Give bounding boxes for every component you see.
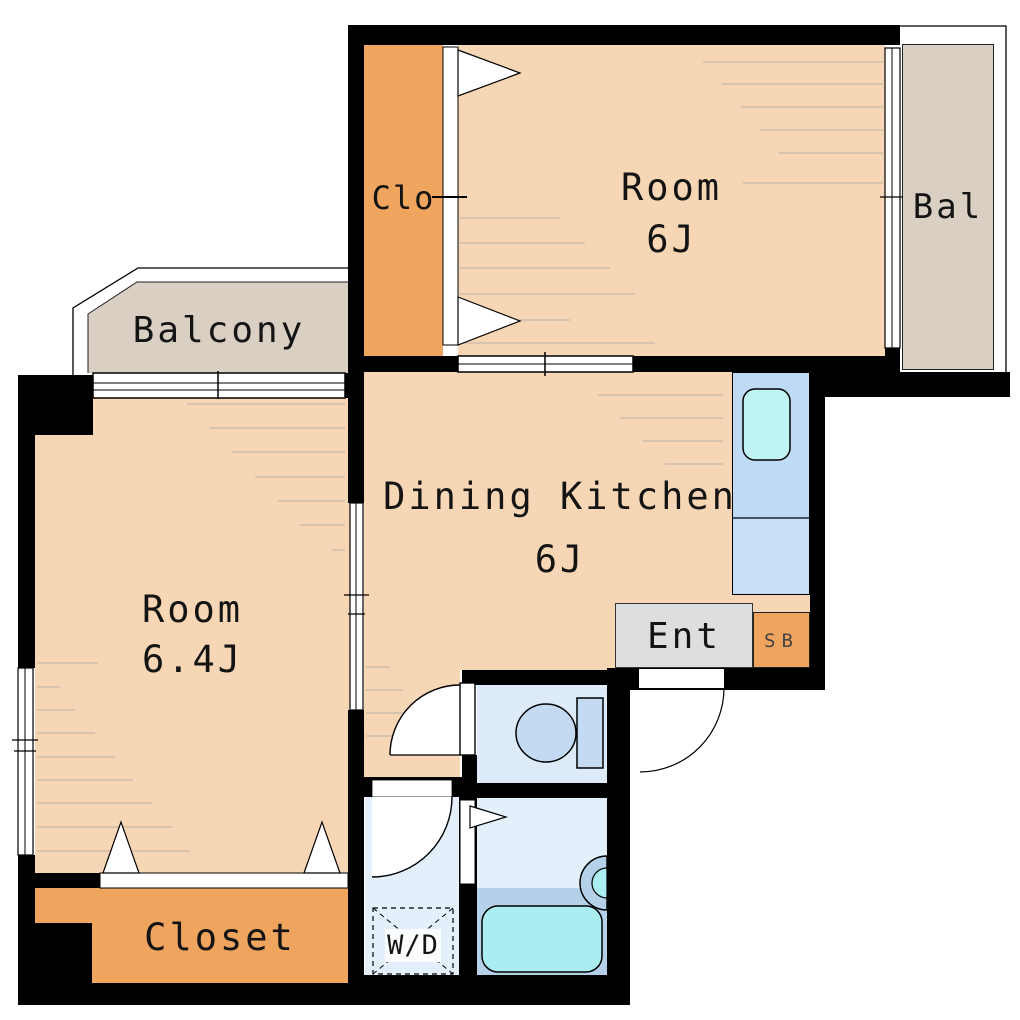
bedroom-top-size: 6J <box>458 220 885 260</box>
entrance-door-arc <box>640 688 724 772</box>
closet-bottom-door-triangle <box>304 822 340 873</box>
closet-bottom-label: Closet <box>92 918 348 958</box>
washer-dryer-label: W/D <box>369 931 457 961</box>
shoe-box-label: SB <box>753 629 810 653</box>
balcony-left-label: Balcony <box>88 311 350 351</box>
toilet-door-swing <box>390 685 460 755</box>
bedroom-top-label: Room <box>458 168 885 208</box>
washer-room-door-opening <box>372 780 452 797</box>
closet-top-door-triangle <box>458 297 520 345</box>
bathroom-door-triangle <box>470 806 506 828</box>
closet-bottom-door-triangle <box>103 822 139 873</box>
toilet-icon <box>516 704 576 762</box>
toilet-tank-icon <box>577 698 603 768</box>
dining-kitchen-size: 6J <box>364 540 756 580</box>
kitchen-sink-icon <box>743 389 790 460</box>
bedroom-left-label: Room <box>35 590 350 630</box>
bathtub-icon <box>482 906 602 972</box>
entrance-label: Ent <box>615 617 753 657</box>
toilet-door-leaf <box>460 683 475 755</box>
closet-top-door-triangle <box>458 50 520 96</box>
closet-top-leader-line <box>432 196 467 198</box>
bedroom-left-size: 6.4J <box>35 640 350 680</box>
window <box>93 373 345 398</box>
closet-top-label: Clo <box>364 178 443 218</box>
entrance-door-opening <box>639 669 724 688</box>
washer-dryer-label-text: W/D <box>385 929 441 962</box>
closet-bottom-door <box>100 873 348 888</box>
floor-plan: Room 6J Bal Clo Balcony Room 6.4J Dining… <box>0 0 1020 1020</box>
washer-room-door-swing <box>372 797 452 877</box>
dining-kitchen-label: Dining Kitchen <box>364 477 756 517</box>
balcony-right-label: Bal <box>902 187 994 227</box>
